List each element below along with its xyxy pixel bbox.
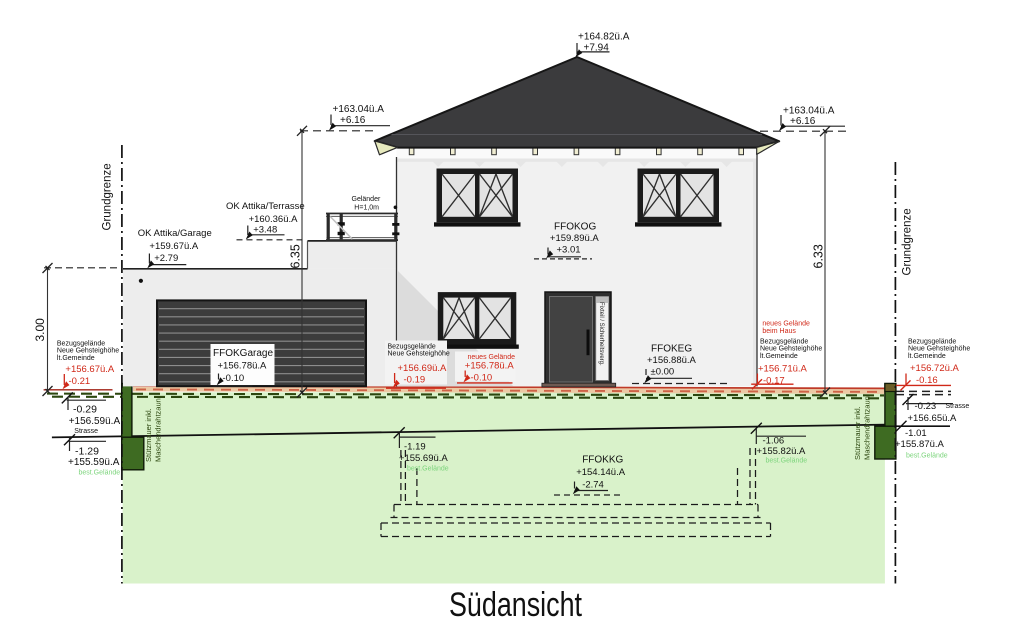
svg-text:+156.88ü.A: +156.88ü.A [647,355,697,366]
svg-text:Fixteil / Sicherheitsverg.: Fixteil / Sicherheitsverg. [598,302,604,366]
svg-text:-0.10: -0.10 [471,373,493,384]
svg-text:Bezugsgelände: Bezugsgelände [760,339,808,346]
svg-text:+154.14ü.A: +154.14ü.A [576,467,626,478]
svg-text:FFOKEG: FFOKEG [651,344,692,355]
svg-text:Neue Gehsteighöhe: Neue Gehsteighöhe [388,351,450,358]
svg-text:Maschendrahtzaun: Maschendrahtzaun [154,398,163,462]
svg-text:FFOKGarage: FFOKGarage [213,348,273,359]
svg-text:+156.72ü.A: +156.72ü.A [910,363,960,374]
svg-text:Grundgrenze: Grundgrenze [902,208,914,275]
svg-text:Stützmauer inkl.: Stützmauer inkl. [853,406,862,460]
svg-text:best.Gelände: best.Gelände [906,453,948,460]
svg-text:Stützmauer inkl.: Stützmauer inkl. [144,408,153,462]
svg-text:+6.16: +6.16 [340,115,366,126]
svg-text:+163.04ü.A: +163.04ü.A [783,106,835,117]
svg-text:lt.Gemeinde: lt.Gemeinde [760,353,798,360]
svg-text:FFOKOG: FFOKOG [554,222,596,233]
svg-text:3.00: 3.00 [33,318,47,342]
svg-text:OK Attika/Terrasse: OK Attika/Terrasse [226,201,305,212]
svg-text:FFOKKG: FFOKKG [582,455,623,466]
svg-text:-0.23: -0.23 [915,401,937,412]
svg-text:Südansicht: Südansicht [449,586,582,624]
svg-text:-0.29: -0.29 [73,404,97,416]
svg-text:Neue Gehsteighöhe: Neue Gehsteighöhe [57,348,119,355]
svg-text:Neue Gehsteighöhe: Neue Gehsteighöhe [908,346,970,353]
svg-text:-0.10: -0.10 [223,373,245,384]
svg-text:+156.65ü.A: +156.65ü.A [908,413,958,424]
svg-text:Maschendrahtzaun: Maschendrahtzaun [863,396,872,460]
svg-text:best.Gelände: best.Gelände [407,466,449,473]
svg-text:+156.71ü.A: +156.71ü.A [758,364,808,375]
svg-text:-1.06: -1.06 [763,436,785,447]
svg-text:lt.Gemeinde: lt.Gemeinde [908,353,946,360]
svg-text:neues Gelände: neues Gelände [762,321,810,328]
svg-text:+163.04ü.A: +163.04ü.A [333,104,385,115]
svg-text:Geländer: Geländer [352,196,381,203]
svg-text:-0.16: -0.16 [916,375,938,386]
svg-text:-0.19: -0.19 [404,375,426,386]
svg-text:+156.78ü.A: +156.78ü.A [218,361,268,372]
svg-text:+156.78ü.A: +156.78ü.A [465,361,515,372]
svg-text:-1.29: -1.29 [75,446,99,458]
svg-text:+155.59ü.A: +155.59ü.A [68,457,120,468]
svg-text:+155.82ü.A: +155.82ü.A [757,446,807,457]
svg-text:lt.Gemeinde: lt.Gemeinde [57,355,95,362]
svg-text:Strasse: Strasse [74,428,98,435]
svg-text:Bezugsgelände: Bezugsgelände [908,339,956,346]
svg-text:+155.87ü.A: +155.87ü.A [895,439,945,450]
svg-text:+156.67ü.A: +156.67ü.A [65,364,115,375]
svg-text:+164.82ü.A: +164.82ü.A [578,32,630,43]
svg-text:6.33: 6.33 [812,244,826,268]
svg-text:-1.19: -1.19 [404,442,426,453]
svg-text:+3.01: +3.01 [557,245,581,256]
svg-text:-0.21: -0.21 [69,376,91,387]
svg-text:-1.01: -1.01 [905,428,927,439]
svg-text:+3.48: +3.48 [253,224,277,235]
svg-text:+6.16: +6.16 [790,116,816,127]
svg-text:Bezugsgelände: Bezugsgelände [57,341,105,348]
svg-text:±0.00: ±0.00 [651,367,675,378]
svg-text:+156.59ü.A: +156.59ü.A [69,416,121,427]
svg-text:Grundgrenze: Grundgrenze [102,163,114,230]
svg-text:-2.74: -2.74 [582,480,604,491]
svg-text:beim Haus: beim Haus [762,328,796,335]
svg-text:OK Attika/Garage: OK Attika/Garage [138,228,212,239]
svg-text:Bezugsgelände: Bezugsgelände [388,344,436,351]
svg-text:Neue Gehsteighöhe: Neue Gehsteighöhe [760,346,822,353]
svg-text:+155.69ü.A: +155.69ü.A [399,453,449,464]
svg-text:+156.69ü.A: +156.69ü.A [398,363,448,374]
svg-text:best.Gelände: best.Gelände [79,470,121,477]
svg-text:best.Gelände: best.Gelände [766,458,808,465]
svg-text:6.35: 6.35 [289,244,303,268]
svg-text:Strasse: Strasse [946,403,970,410]
svg-text:+159.89ü.A: +159.89ü.A [550,233,600,244]
svg-text:+2.79: +2.79 [154,253,178,264]
svg-text:H=1,0m: H=1,0m [354,204,379,211]
svg-text:+159.67ü.A: +159.67ü.A [149,241,199,252]
